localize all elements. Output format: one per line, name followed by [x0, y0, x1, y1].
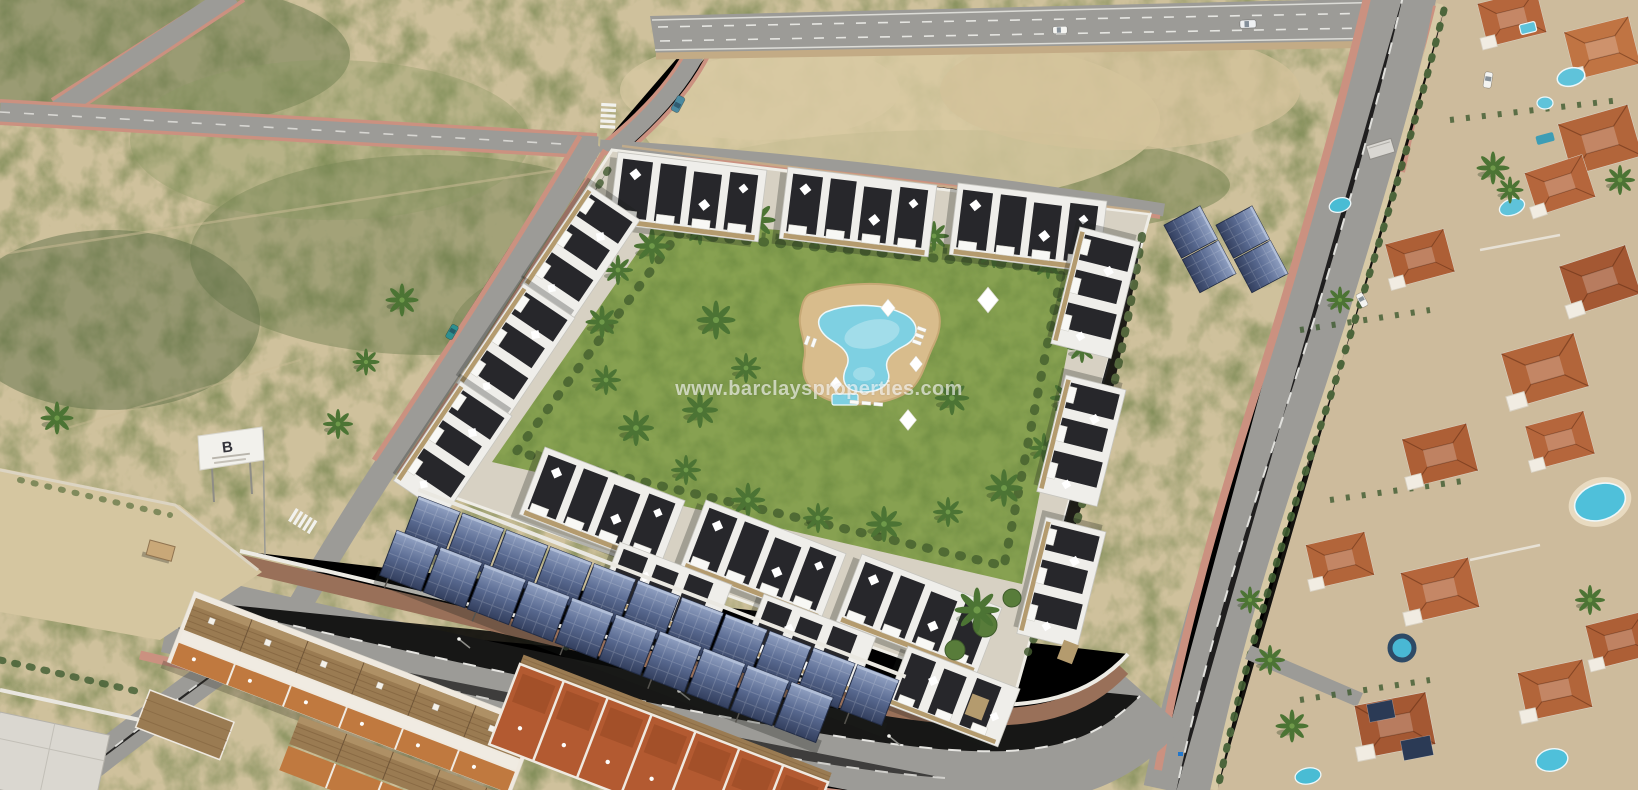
palm-tree: [1605, 165, 1635, 195]
white-car: [1053, 26, 1068, 34]
palm-tree: [1497, 177, 1524, 204]
scene: B: [0, 0, 1638, 790]
palm-tree: [1477, 152, 1510, 185]
palm-tree: [1327, 287, 1354, 314]
palm-tree: [386, 284, 419, 317]
palm-tree: [1276, 710, 1309, 743]
white-car: [1240, 20, 1256, 29]
palm-tree: [1255, 645, 1285, 675]
palm-tree: [353, 349, 380, 376]
road-sign: [1178, 752, 1183, 756]
billboard-logo: B: [221, 438, 234, 456]
round-pool: [1390, 636, 1414, 660]
aerial-render-photo: B: [0, 0, 1638, 790]
palm-tree: [41, 402, 74, 435]
palm-tree: [1237, 587, 1264, 614]
palm-tree: [323, 409, 353, 439]
palm-tree: [955, 588, 1000, 633]
palm-tree: [1575, 585, 1605, 615]
